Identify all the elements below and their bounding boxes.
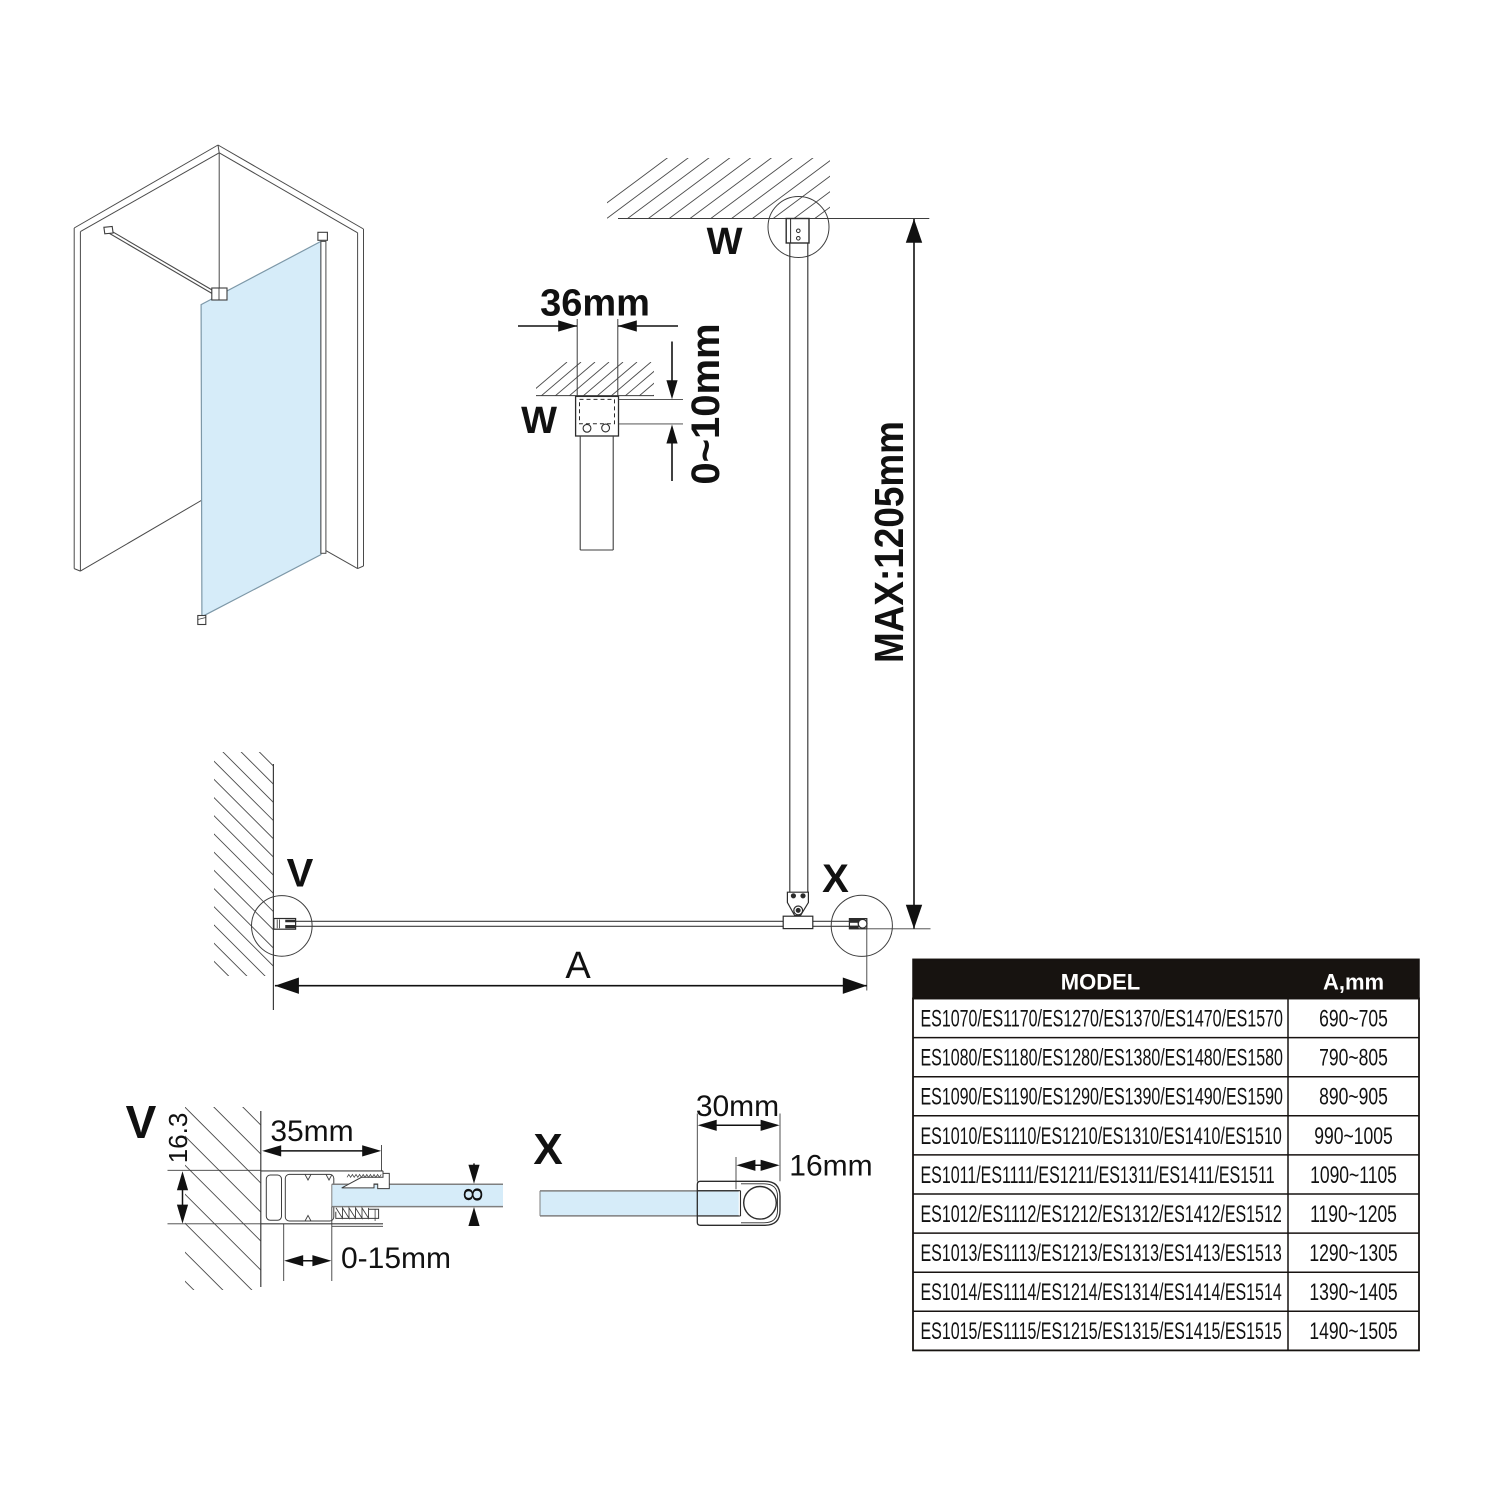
svg-text:16.3: 16.3 bbox=[163, 1113, 193, 1164]
svg-text:0~10mm: 0~10mm bbox=[684, 323, 728, 484]
svg-text:ES1012/ES1112/ES1212/ES1312/ES: ES1012/ES1112/ES1212/ES1312/ES1412/ES151… bbox=[921, 1202, 1282, 1228]
svg-text:8: 8 bbox=[458, 1187, 488, 1201]
svg-text:ES1013/ES1113/ES1213/ES1313/ES: ES1013/ES1113/ES1213/ES1313/ES1413/ES151… bbox=[921, 1241, 1282, 1267]
svg-text:35mm: 35mm bbox=[270, 1115, 353, 1148]
svg-text:MODEL: MODEL bbox=[1061, 969, 1140, 994]
svg-text:ES1080/ES1180/ES1280/ES1380/ES: ES1080/ES1180/ES1280/ES1380/ES1480/ES158… bbox=[921, 1045, 1283, 1071]
svg-text:1390~1405: 1390~1405 bbox=[1309, 1280, 1397, 1306]
svg-text:W: W bbox=[707, 221, 743, 263]
svg-text:1090~1105: 1090~1105 bbox=[1310, 1162, 1397, 1188]
svg-text:36mm: 36mm bbox=[540, 282, 650, 324]
svg-text:V: V bbox=[287, 852, 314, 896]
svg-text:890~905: 890~905 bbox=[1319, 1084, 1388, 1110]
svg-text:ES1070/ES1170/ES1270/ES1370/ES: ES1070/ES1170/ES1270/ES1370/ES1470/ES157… bbox=[921, 1006, 1283, 1032]
svg-text:A,mm: A,mm bbox=[1323, 969, 1384, 994]
svg-text:1190~1205: 1190~1205 bbox=[1310, 1201, 1397, 1227]
svg-text:1490~1505: 1490~1505 bbox=[1309, 1319, 1397, 1345]
svg-text:W: W bbox=[521, 400, 557, 442]
svg-text:ES1010/ES1110/ES1210/ES1310/ES: ES1010/ES1110/ES1210/ES1310/ES1410/ES151… bbox=[921, 1124, 1282, 1150]
svg-text:ES1015/ES1115/ES1215/ES1315/ES: ES1015/ES1115/ES1215/ES1315/ES1415/ES151… bbox=[921, 1319, 1282, 1345]
svg-text:ES1090/ES1190/ES1290/ES1390/ES: ES1090/ES1190/ES1290/ES1390/ES1490/ES159… bbox=[921, 1085, 1283, 1111]
svg-text:16mm: 16mm bbox=[789, 1149, 872, 1182]
svg-text:30mm: 30mm bbox=[696, 1090, 779, 1123]
svg-text:X: X bbox=[533, 1125, 562, 1174]
svg-text:V: V bbox=[126, 1096, 157, 1148]
svg-text:MAX:1205mm: MAX:1205mm bbox=[867, 421, 912, 663]
svg-text:790~805: 790~805 bbox=[1319, 1045, 1388, 1071]
svg-text:ES1014/ES1114/ES1214/ES1314/ES: ES1014/ES1114/ES1214/ES1314/ES1414/ES151… bbox=[921, 1280, 1282, 1306]
svg-text:990~1005: 990~1005 bbox=[1314, 1123, 1392, 1149]
svg-text:1290~1305: 1290~1305 bbox=[1309, 1240, 1397, 1266]
svg-text:690~705: 690~705 bbox=[1319, 1006, 1388, 1032]
svg-text:A: A bbox=[565, 945, 591, 987]
svg-text:X: X bbox=[822, 857, 849, 901]
svg-text:ES1011/ES1111/ES1211/ES1311/ES: ES1011/ES1111/ES1211/ES1311/ES1411/ES151… bbox=[921, 1163, 1275, 1189]
svg-text:0-15mm: 0-15mm bbox=[341, 1242, 451, 1275]
